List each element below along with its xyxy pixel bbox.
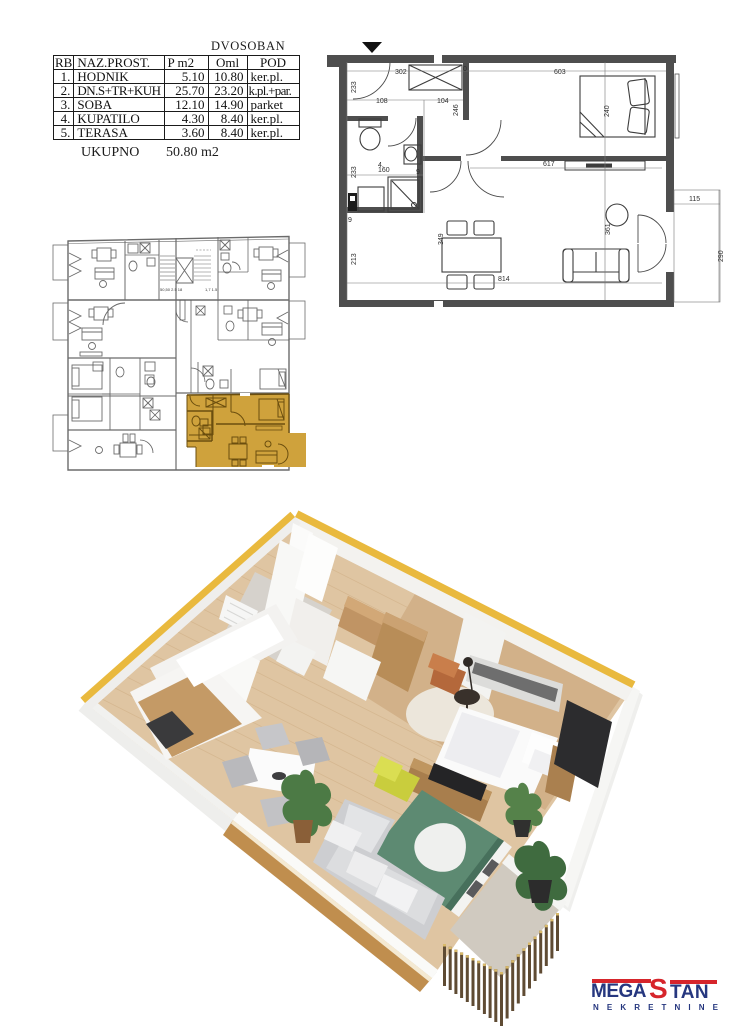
svg-text:617: 617 bbox=[543, 161, 555, 168]
svg-text:240: 240 bbox=[604, 105, 611, 117]
svg-text:302: 302 bbox=[395, 69, 407, 76]
svg-text:50,50 2.5 18: 50,50 2.5 18 bbox=[160, 287, 183, 292]
svg-text:349: 349 bbox=[438, 233, 445, 245]
svg-text:603: 603 bbox=[554, 69, 566, 76]
svg-text:233: 233 bbox=[351, 81, 358, 93]
svg-text:246: 246 bbox=[453, 104, 460, 116]
svg-text:104: 104 bbox=[437, 98, 449, 105]
svg-text:9: 9 bbox=[416, 169, 420, 176]
svg-text:233: 233 bbox=[351, 166, 358, 178]
svg-text:1,7 1.5: 1,7 1.5 bbox=[205, 287, 218, 292]
svg-text:814: 814 bbox=[498, 276, 510, 283]
svg-text:115: 115 bbox=[689, 196, 700, 203]
svg-text:4.: 4. bbox=[378, 162, 384, 169]
svg-text:108: 108 bbox=[376, 98, 388, 105]
svg-text:361: 361 bbox=[605, 223, 612, 235]
svg-text:213: 213 bbox=[351, 253, 358, 265]
svg-text:9: 9 bbox=[348, 217, 352, 224]
svg-text:0: 0 bbox=[463, 66, 467, 73]
svg-text:290: 290 bbox=[718, 250, 725, 262]
